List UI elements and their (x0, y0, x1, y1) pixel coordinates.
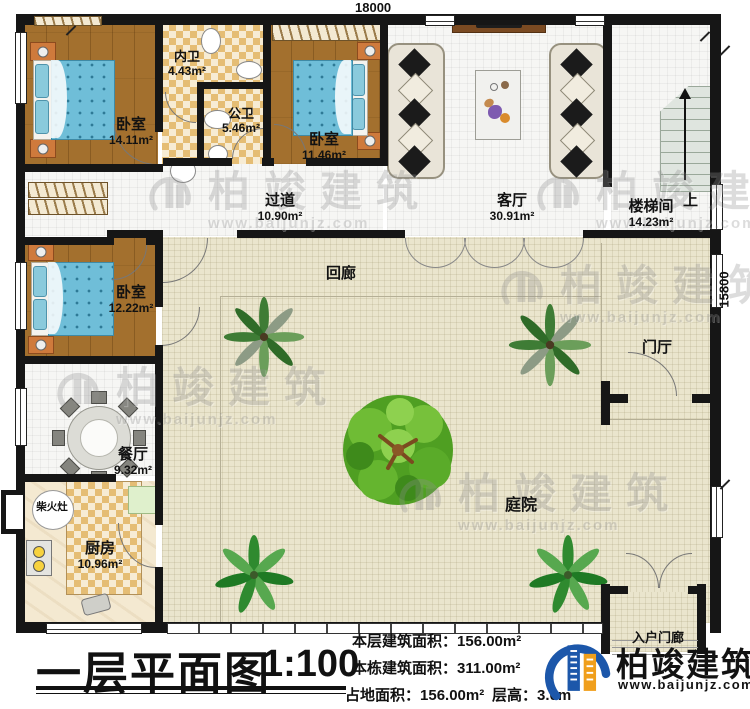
coffee-table (475, 70, 521, 140)
stat-floor-area: 本层建筑面积：156.00m² (352, 630, 521, 651)
drawing-scale: 1:100 (262, 643, 359, 686)
stat-footprint: 占地面积：156.00m² (345, 684, 484, 705)
wall-segment (610, 394, 628, 403)
dimension-tick (720, 45, 731, 56)
window (46, 623, 142, 634)
stat-building-area-label: 本栋建筑面积： (352, 660, 457, 677)
wall-segment (16, 356, 163, 364)
stat-footprint-label: 占地面积： (345, 687, 420, 704)
toilet (236, 61, 262, 79)
wall-outer-right (710, 14, 721, 633)
window (15, 262, 27, 330)
title-rule-thin (36, 693, 346, 694)
bed-pillow (33, 299, 47, 330)
wall-segment (692, 394, 710, 403)
wall-segment (237, 230, 405, 238)
bed-sheet (335, 60, 351, 134)
dimension-top: 18000 (355, 0, 391, 15)
sofa-cushion (560, 145, 593, 178)
nightstand (357, 42, 382, 60)
wall-segment (163, 158, 232, 166)
wall-segment (155, 345, 163, 525)
room-label-bedroom2: 卧室 11.46m² (288, 132, 360, 162)
large-tree (337, 390, 459, 510)
window (15, 32, 27, 104)
bed-pillow (35, 64, 49, 98)
wall-segment (603, 14, 612, 187)
window (15, 388, 27, 446)
brand-logo-icon (540, 632, 616, 708)
kitchen-appliance (128, 486, 156, 514)
wall-segment (155, 567, 163, 622)
sofa-cushion (398, 145, 431, 178)
palm-plant (213, 535, 295, 615)
wall-porch-top (608, 586, 628, 594)
wall-segment (16, 164, 163, 172)
stat-building-area: 本栋建筑面积：311.00m² (352, 657, 520, 678)
brand-url: www.baijunjz.com (618, 677, 750, 692)
dimension-right: 15800 (717, 271, 732, 307)
room-label-bath-inner: 内卫 4.43m² (160, 50, 214, 78)
room-label-living: 客厅 30.91m² (476, 193, 548, 223)
nightstand (30, 139, 56, 158)
wall-porch-top (688, 586, 699, 594)
room-label-stairwell: 楼梯间 14.23m² (615, 199, 687, 229)
bed-pillow (33, 266, 47, 297)
stove (26, 540, 52, 576)
stairs-up-arrow (679, 88, 691, 99)
room-label-wood-stove: 柴火灶 (28, 502, 76, 514)
wall-outer-top (16, 14, 721, 25)
bed-pillow (35, 100, 49, 134)
room-label-bedroom1: 卧室 14.11m² (86, 117, 176, 147)
window-vent (34, 16, 102, 26)
wall-segment (200, 82, 268, 89)
window (711, 184, 723, 230)
room-label-courtyard: 庭院 (499, 497, 543, 515)
room-label-dining: 餐厅 9.32m² (103, 447, 163, 477)
bed-pillow (352, 98, 365, 130)
wall-segment (262, 158, 274, 166)
stat-footprint-value: 156.00m² (420, 687, 484, 704)
wall-segment (601, 381, 610, 425)
stat-floor-area-label: 本层建筑面积： (352, 633, 457, 650)
wall-segment (16, 474, 116, 482)
palm-plant (503, 303, 597, 387)
foyer-step-line (605, 419, 710, 420)
cloister-line (601, 243, 602, 383)
room-label-cloister: 回廊 (318, 266, 364, 283)
sofa-left (387, 43, 445, 179)
wall-segment (197, 82, 204, 158)
nightstand (28, 243, 54, 261)
room-label-hallway: 过道 10.90m² (244, 193, 316, 223)
wall-segment (583, 230, 612, 238)
sofa-right (549, 43, 607, 179)
room-label-bedroom3: 卧室 12.22m² (94, 285, 168, 315)
wardrobe (272, 24, 382, 41)
stairs-up-label: 上 (683, 189, 698, 210)
palm-plant (218, 296, 310, 378)
bed-pillow (352, 64, 365, 96)
nightstand (30, 42, 56, 61)
stat-building-area-value: 311.00m² (457, 660, 520, 677)
dining-chair (133, 430, 146, 446)
stat-floor-area-value: 156.00m² (457, 633, 521, 650)
room-label-kitchen: 厨房 10.96m² (69, 541, 131, 571)
floor-plan-page: 18000 15800 柏竣建筑 www.baijunjz.com 柏竣建筑 w… (0, 0, 750, 709)
nightstand (28, 336, 54, 354)
wardrobe (28, 199, 108, 215)
stairs-direction-line (684, 98, 686, 180)
room-label-foyer: 门厅 (634, 340, 680, 357)
stat-height-label: 层高： (492, 687, 537, 704)
wall-segment (380, 14, 388, 166)
window (711, 486, 723, 538)
palm-plant (526, 535, 610, 615)
room-label-bath-public: 公卫 5.46m² (214, 107, 268, 135)
dimension-tick (720, 479, 731, 490)
dining-chair (91, 391, 107, 404)
wall-segment (612, 230, 710, 238)
chimney (1, 490, 23, 534)
window (425, 15, 455, 26)
wall-segment (16, 237, 114, 245)
dining-chair (52, 430, 65, 446)
title-rule-thick (36, 686, 346, 690)
wardrobe (28, 182, 108, 198)
window (575, 15, 605, 26)
